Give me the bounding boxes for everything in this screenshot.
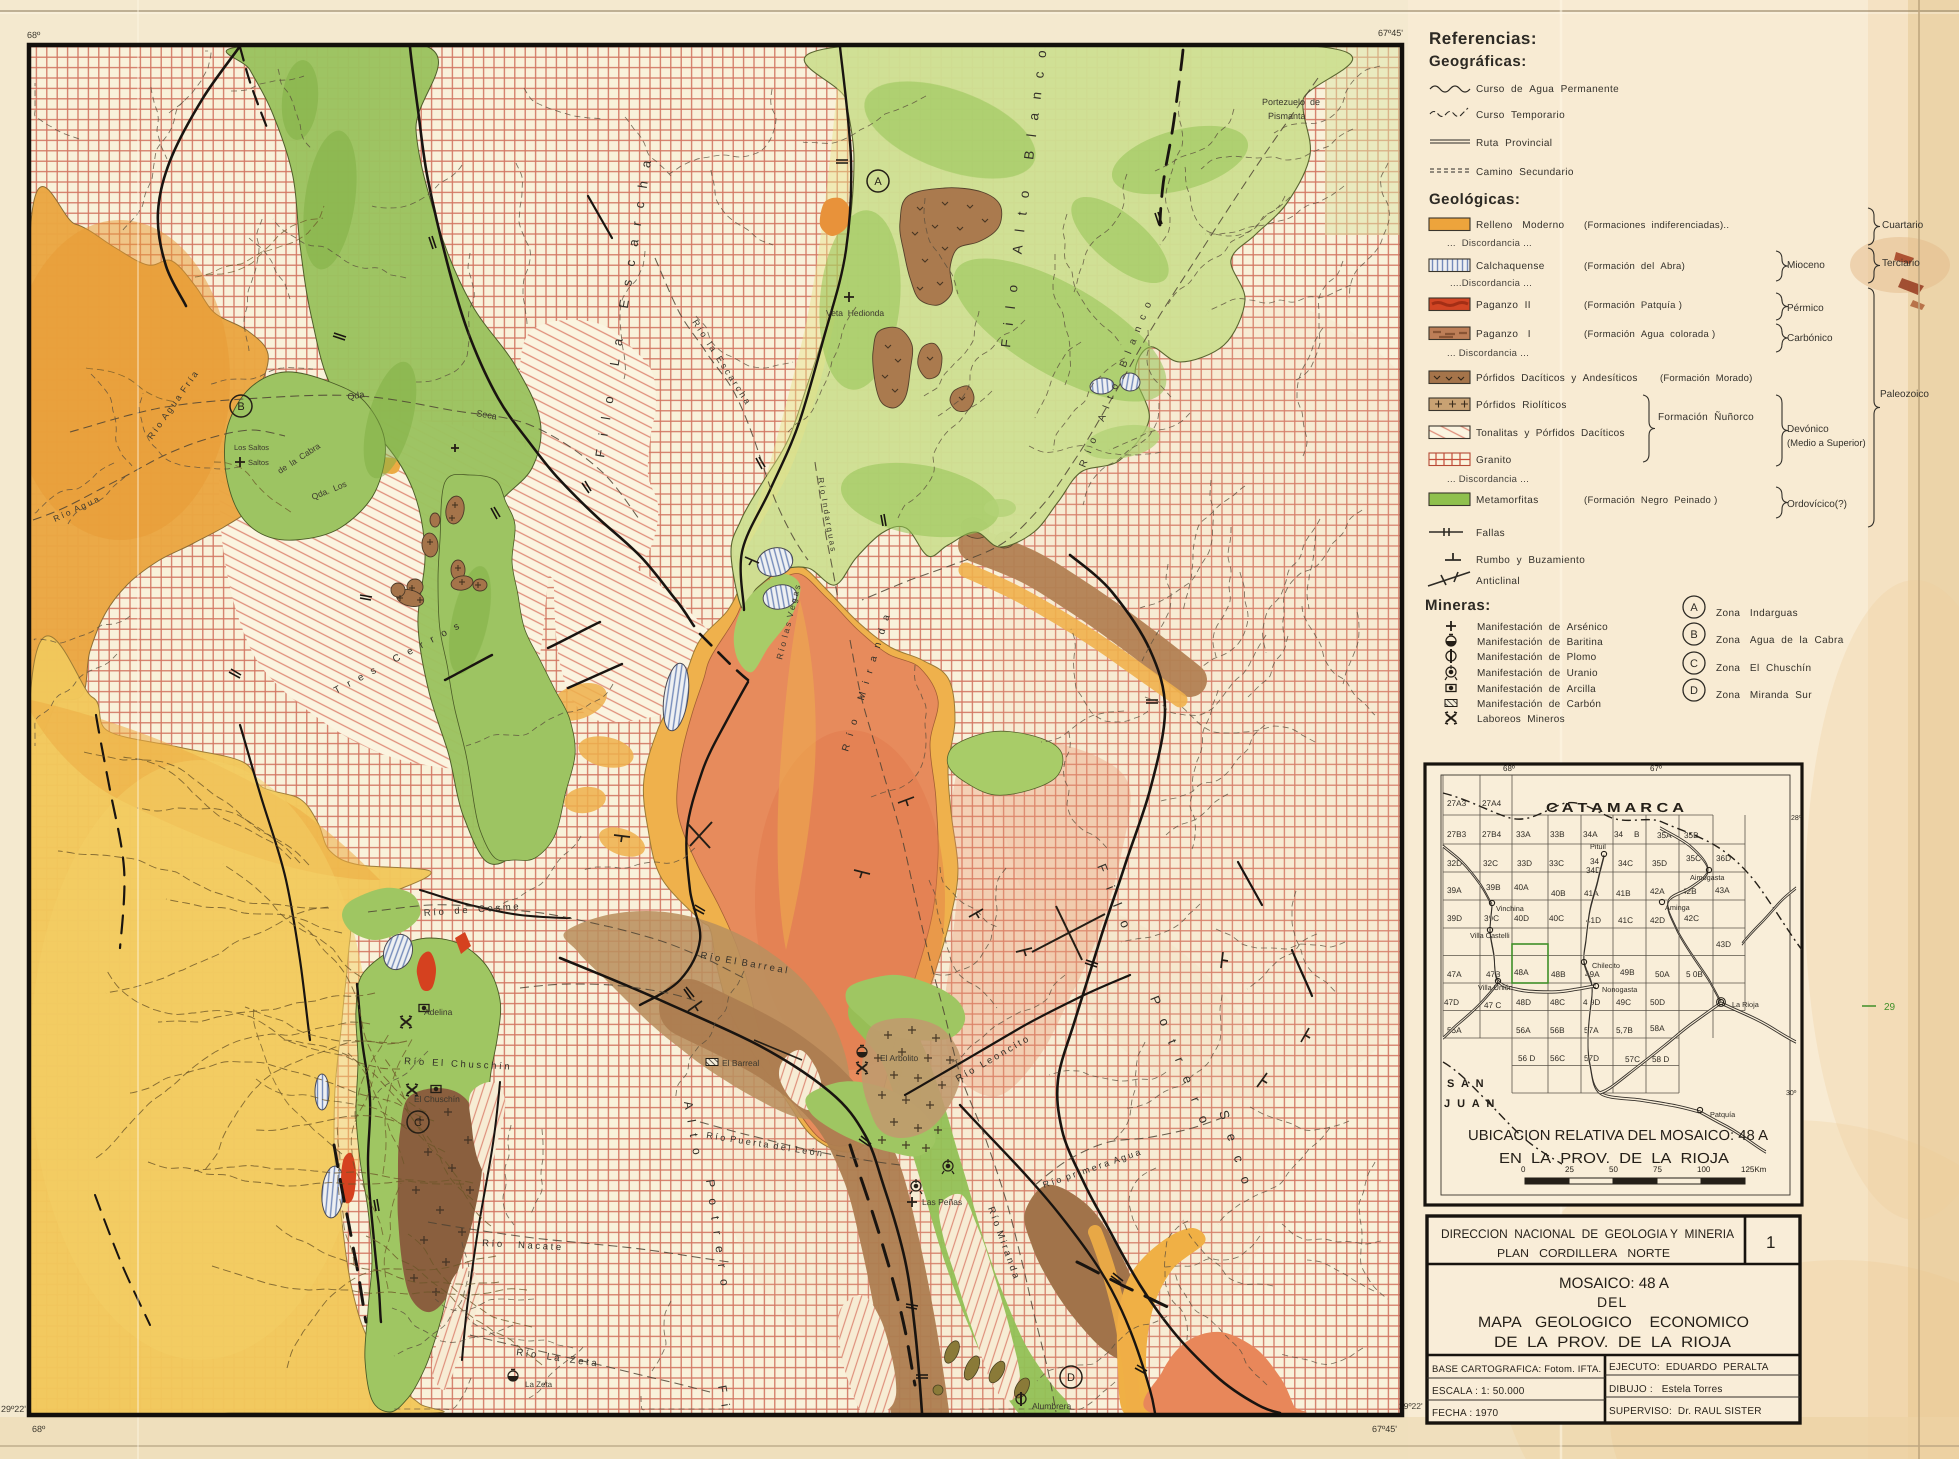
svg-text:B: B	[1634, 830, 1640, 839]
svg-text:47 C: 47 C	[1484, 1001, 1501, 1010]
svg-text:Los Saltos: Los Saltos	[234, 443, 269, 452]
svg-text:50D: 50D	[1650, 998, 1665, 1007]
svg-text:(Medio a Superior): (Medio a Superior)	[1787, 438, 1866, 449]
svg-text:Referencias:: Referencias:	[1429, 29, 1537, 48]
svg-text:MAPA GEOLOGICO ECONOMICO: MAPA GEOLOGICO ECONOMICO	[1478, 1314, 1749, 1331]
svg-text:33A: 33A	[1516, 830, 1531, 839]
svg-text:SUPERVISO: Dr. RAUL SISTER: SUPERVISO: Dr. RAUL SISTER	[1609, 1406, 1762, 1417]
svg-text:Paganzo II: Paganzo II	[1476, 300, 1531, 311]
svg-text:Nonogasta: Nonogasta	[1602, 985, 1638, 994]
svg-text:Las Peñas: Las Peñas	[922, 1197, 962, 1207]
svg-text:Calchaquense: Calchaquense	[1476, 261, 1545, 272]
svg-text:29: 29	[1884, 1002, 1896, 1013]
svg-text:Terciario: Terciario	[1882, 258, 1920, 269]
svg-text:(Formación Morado): (Formación Morado)	[1660, 373, 1753, 384]
svg-text:(Formación Negro Peinado ): (Formación Negro Peinado )	[1584, 495, 1718, 506]
svg-text:Paleozoico: Paleozoico	[1880, 389, 1929, 400]
svg-text:S A N: S A N	[1447, 1078, 1486, 1090]
svg-text:Zona Indarguas: Zona Indarguas	[1716, 608, 1798, 619]
svg-text:Saltos: Saltos	[248, 458, 269, 467]
svg-text:Paganzo I: Paganzo I	[1476, 329, 1531, 340]
svg-text:47B: 47B	[1486, 970, 1501, 979]
svg-text:....Discordancia ...: ....Discordancia ...	[1450, 278, 1532, 289]
svg-text:D: D	[1067, 1372, 1075, 1384]
svg-text:Curso de Agua Permanente: Curso de Agua Permanente	[1476, 84, 1619, 95]
svg-text:MOSAICO: 48 A: MOSAICO: 48 A	[1559, 1275, 1669, 1292]
svg-text:Villa Unión: Villa Unión	[1478, 983, 1513, 992]
svg-text:100: 100	[1697, 1165, 1711, 1174]
svg-text:Tonalitas y Pórfidos Dacíti: Tonalitas y Pórfidos Dacíticos	[1476, 428, 1625, 439]
svg-text:Aimogasta: Aimogasta	[1690, 873, 1725, 882]
svg-text:Granito: Granito	[1476, 455, 1512, 466]
svg-text:57D: 57D	[1584, 1054, 1599, 1063]
svg-text:Formación Ñuñorco: Formación Ñuñorco	[1658, 411, 1754, 423]
svg-text:... Discordancia ...: ... Discordancia ...	[1447, 238, 1532, 249]
svg-text:Relleno Moderno: Relleno Moderno	[1476, 220, 1565, 231]
svg-text:56B: 56B	[1550, 1026, 1565, 1035]
svg-text:(Formación del Abra): (Formación del Abra)	[1584, 261, 1685, 272]
svg-text:Curso Temporario: Curso Temporario	[1476, 110, 1565, 121]
svg-text:Mineras:: Mineras:	[1425, 597, 1491, 614]
svg-text:El Barreal: El Barreal	[722, 1058, 759, 1068]
svg-text:67º: 67º	[1650, 764, 1662, 773]
svg-text:Pórfidos Dacíticos y Andesí: Pórfidos Dacíticos y Andesíticos	[1476, 373, 1638, 384]
svg-text:41A: 41A	[1584, 889, 1599, 898]
svg-text:Manifestación de Baritina: Manifestación de Baritina	[1477, 637, 1603, 648]
svg-text:125Km: 125Km	[1741, 1165, 1767, 1174]
svg-text:34A: 34A	[1583, 830, 1598, 839]
svg-text:Zona Miranda Sur: Zona Miranda Sur	[1716, 690, 1812, 701]
svg-text:39D: 39D	[1447, 914, 1462, 923]
svg-text:Chilecito: Chilecito	[1592, 961, 1620, 970]
svg-text:Camino Secundario: Camino Secundario	[1476, 167, 1574, 178]
svg-text:43A: 43A	[1715, 886, 1730, 895]
svg-text:42A: 42A	[1650, 887, 1665, 896]
svg-text:35D: 35D	[1652, 859, 1667, 868]
svg-text:Pismanta: Pismanta	[1268, 111, 1306, 121]
svg-text:La Zeta: La Zeta	[525, 1380, 553, 1389]
svg-text:Laboreos Mineros: Laboreos Mineros	[1477, 714, 1565, 725]
svg-text:28º: 28º	[1791, 815, 1802, 822]
svg-text:Patquía: Patquía	[1710, 1110, 1736, 1119]
svg-text:Portezuelo de: Portezuelo de	[1262, 97, 1320, 107]
svg-text:43D: 43D	[1716, 940, 1731, 949]
svg-text:Manifestación de Carbón: Manifestación de Carbón	[1477, 699, 1601, 710]
svg-text:Pituil: Pituil	[1590, 842, 1606, 851]
svg-text:ESCALA : 1: 50.000: ESCALA : 1: 50.000	[1432, 1386, 1525, 1397]
svg-text:27A4: 27A4	[1482, 799, 1502, 808]
svg-text:32C: 32C	[1483, 859, 1498, 868]
svg-text:BASE CARTOGRAFICA: Fotom. IFTA: BASE CARTOGRAFICA: Fotom. IFTA.	[1432, 1364, 1601, 1375]
svg-text:Devónico: Devónico	[1787, 424, 1829, 435]
svg-text:0: 0	[1521, 1165, 1526, 1174]
svg-text:DIRECCION NACIONAL DE GEOLO: DIRECCION NACIONAL DE GEOLOGIA Y MINERIA	[1441, 1227, 1735, 1241]
svg-text:33B: 33B	[1550, 830, 1565, 839]
svg-text:Pérmico: Pérmico	[1787, 303, 1824, 314]
svg-text:50: 50	[1609, 1165, 1618, 1174]
svg-text:B: B	[237, 401, 244, 413]
svg-text:58A: 58A	[1650, 1024, 1665, 1033]
svg-text:El Arbolito: El Arbolito	[880, 1053, 919, 1063]
svg-text:56 D: 56 D	[1518, 1054, 1535, 1063]
svg-text:(Formación Agua colorada ): (Formación Agua colorada )	[1584, 329, 1715, 340]
svg-text:40B: 40B	[1551, 889, 1566, 898]
svg-text:67º45': 67º45'	[1378, 28, 1403, 38]
svg-text:49B: 49B	[1620, 968, 1635, 977]
svg-text:Pórfidos Riolíticos: Pórfidos Riolíticos	[1476, 400, 1567, 411]
svg-text:(Formación Patquía ): (Formación Patquía )	[1584, 300, 1682, 311]
svg-text:48C: 48C	[1550, 998, 1565, 1007]
svg-text:EJECUTO: EDUARDO PERALTA: EJECUTO: EDUARDO PERALTA	[1609, 1362, 1769, 1373]
svg-text:39B: 39B	[1486, 883, 1501, 892]
svg-text:48B: 48B	[1551, 970, 1566, 979]
svg-text:Manifestación de Plomo: Manifestación de Plomo	[1477, 652, 1597, 663]
svg-text:Alumbrera: Alumbrera	[1032, 1401, 1071, 1411]
svg-text:56A: 56A	[1516, 1026, 1531, 1035]
svg-text:56C: 56C	[1550, 1054, 1565, 1063]
svg-text:27B4: 27B4	[1482, 830, 1502, 839]
svg-text:67º45': 67º45'	[1372, 1424, 1397, 1434]
svg-text:Carbónico: Carbónico	[1787, 333, 1833, 344]
svg-text:FECHA : 1970: FECHA : 1970	[1432, 1408, 1499, 1419]
svg-text:Vinchina: Vinchina	[1496, 904, 1525, 913]
svg-text:PLAN CORDILLERA NORTE: PLAN CORDILLERA NORTE	[1497, 1248, 1670, 1260]
svg-text:Adelina: Adelina	[424, 1007, 453, 1017]
svg-text:42D: 42D	[1650, 916, 1665, 925]
svg-text:Fallas: Fallas	[1476, 528, 1505, 539]
svg-text:Rumbo y Buzamiento: Rumbo y Buzamiento	[1476, 555, 1585, 566]
svg-text:J U A N: J U A N	[1444, 1098, 1496, 1110]
svg-text:47A: 47A	[1447, 970, 1462, 979]
svg-text:5 0B: 5 0B	[1686, 970, 1703, 979]
svg-text:C A T A M A R C A: C A T A M A R C A	[1546, 800, 1685, 815]
svg-text:30º: 30º	[1786, 1090, 1797, 1097]
svg-text:Aminga: Aminga	[1665, 903, 1691, 912]
svg-text:D: D	[1690, 685, 1698, 697]
svg-text:DIBUJO : Estela Torres: DIBUJO : Estela Torres	[1609, 1384, 1723, 1395]
svg-text:34: 34	[1614, 830, 1624, 839]
svg-text:40C: 40C	[1549, 914, 1564, 923]
svg-text:... Discordancia ...: ... Discordancia ...	[1447, 348, 1529, 359]
svg-text:Manifestación de Arcilla: Manifestación de Arcilla	[1477, 684, 1596, 695]
svg-text:UBICACION RELATIVA DEL MOSAICO: UBICACION RELATIVA DEL MOSAICO: 48 A	[1468, 1128, 1768, 1144]
svg-text:40D: 40D	[1514, 914, 1529, 923]
svg-text:39A: 39A	[1447, 886, 1462, 895]
svg-text:75: 75	[1653, 1165, 1662, 1174]
svg-text:DE LA PROV. DE LA RIOJA: DE LA PROV. DE LA RIOJA	[1494, 1334, 1731, 1351]
svg-text:42C: 42C	[1684, 914, 1699, 923]
svg-text:Veta Hedionda: Veta Hedionda	[826, 308, 884, 318]
svg-text:B: B	[1690, 629, 1697, 641]
svg-text:41C: 41C	[1618, 916, 1633, 925]
svg-text:47D: 47D	[1444, 998, 1459, 1007]
svg-text:33C: 33C	[1549, 859, 1564, 868]
svg-text:5,7B: 5,7B	[1616, 1026, 1633, 1035]
svg-text:... Discordancia ...: ... Discordancia ...	[1447, 474, 1529, 485]
svg-text:Geológicas:: Geológicas:	[1429, 191, 1520, 208]
svg-text:La Rioja: La Rioja	[1732, 1000, 1760, 1009]
svg-text:C: C	[1690, 658, 1698, 670]
svg-text:40A: 40A	[1514, 883, 1529, 892]
svg-text:41B: 41B	[1616, 889, 1631, 898]
svg-text:34C: 34C	[1618, 859, 1633, 868]
svg-text:Manifestación de Arsénico: Manifestación de Arsénico	[1477, 622, 1608, 633]
svg-text:58 D: 58 D	[1652, 1055, 1669, 1064]
svg-text:33D: 33D	[1517, 859, 1532, 868]
svg-text:Ordovícico(?): Ordovícico(?)	[1787, 499, 1847, 510]
svg-text:Manifestación de Uranio: Manifestación de Uranio	[1477, 668, 1598, 679]
svg-text:34: 34	[1590, 857, 1600, 866]
svg-text:1: 1	[1766, 1233, 1775, 1252]
svg-text:25: 25	[1565, 1165, 1574, 1174]
svg-text:Metamorfitas: Metamorfitas	[1476, 495, 1539, 506]
svg-text:DEL: DEL	[1597, 1294, 1627, 1310]
svg-text:57C: 57C	[1625, 1055, 1640, 1064]
svg-text:48D: 48D	[1516, 998, 1531, 1007]
svg-text:Ruta Provincial: Ruta Provincial	[1476, 138, 1552, 149]
svg-text:Anticlinal: Anticlinal	[1476, 576, 1520, 587]
svg-text:Geográficas:: Geográficas:	[1429, 53, 1527, 70]
svg-text:27B3: 27B3	[1447, 830, 1467, 839]
svg-text:Zona Agua de la Cabra: Zona Agua de la Cabra	[1716, 635, 1844, 646]
svg-text:48A: 48A	[1514, 968, 1529, 977]
svg-text:49C: 49C	[1616, 998, 1631, 1007]
svg-text:68º: 68º	[1503, 764, 1515, 773]
svg-text:50A: 50A	[1655, 970, 1670, 979]
svg-text:Villa Castelli: Villa Castelli	[1470, 931, 1510, 940]
svg-text:29º22': 29º22'	[1, 1404, 26, 1414]
svg-text:Mioceno: Mioceno	[1787, 260, 1825, 271]
svg-text:A: A	[1690, 602, 1698, 614]
svg-text:El Chuschín: El Chuschín	[414, 1094, 460, 1104]
svg-text:57A: 57A	[1584, 1026, 1599, 1035]
svg-text:C: C	[414, 1117, 422, 1129]
svg-text:68º: 68º	[27, 30, 41, 40]
svg-text:Zona El Chuschín: Zona El Chuschín	[1716, 663, 1811, 674]
svg-text:Cuartario: Cuartario	[1882, 220, 1924, 231]
svg-text:(Formaciones indiferenciadas): (Formaciones indiferenciadas)..	[1584, 220, 1729, 231]
svg-text:A: A	[874, 176, 882, 188]
svg-text:68º: 68º	[32, 1424, 46, 1434]
